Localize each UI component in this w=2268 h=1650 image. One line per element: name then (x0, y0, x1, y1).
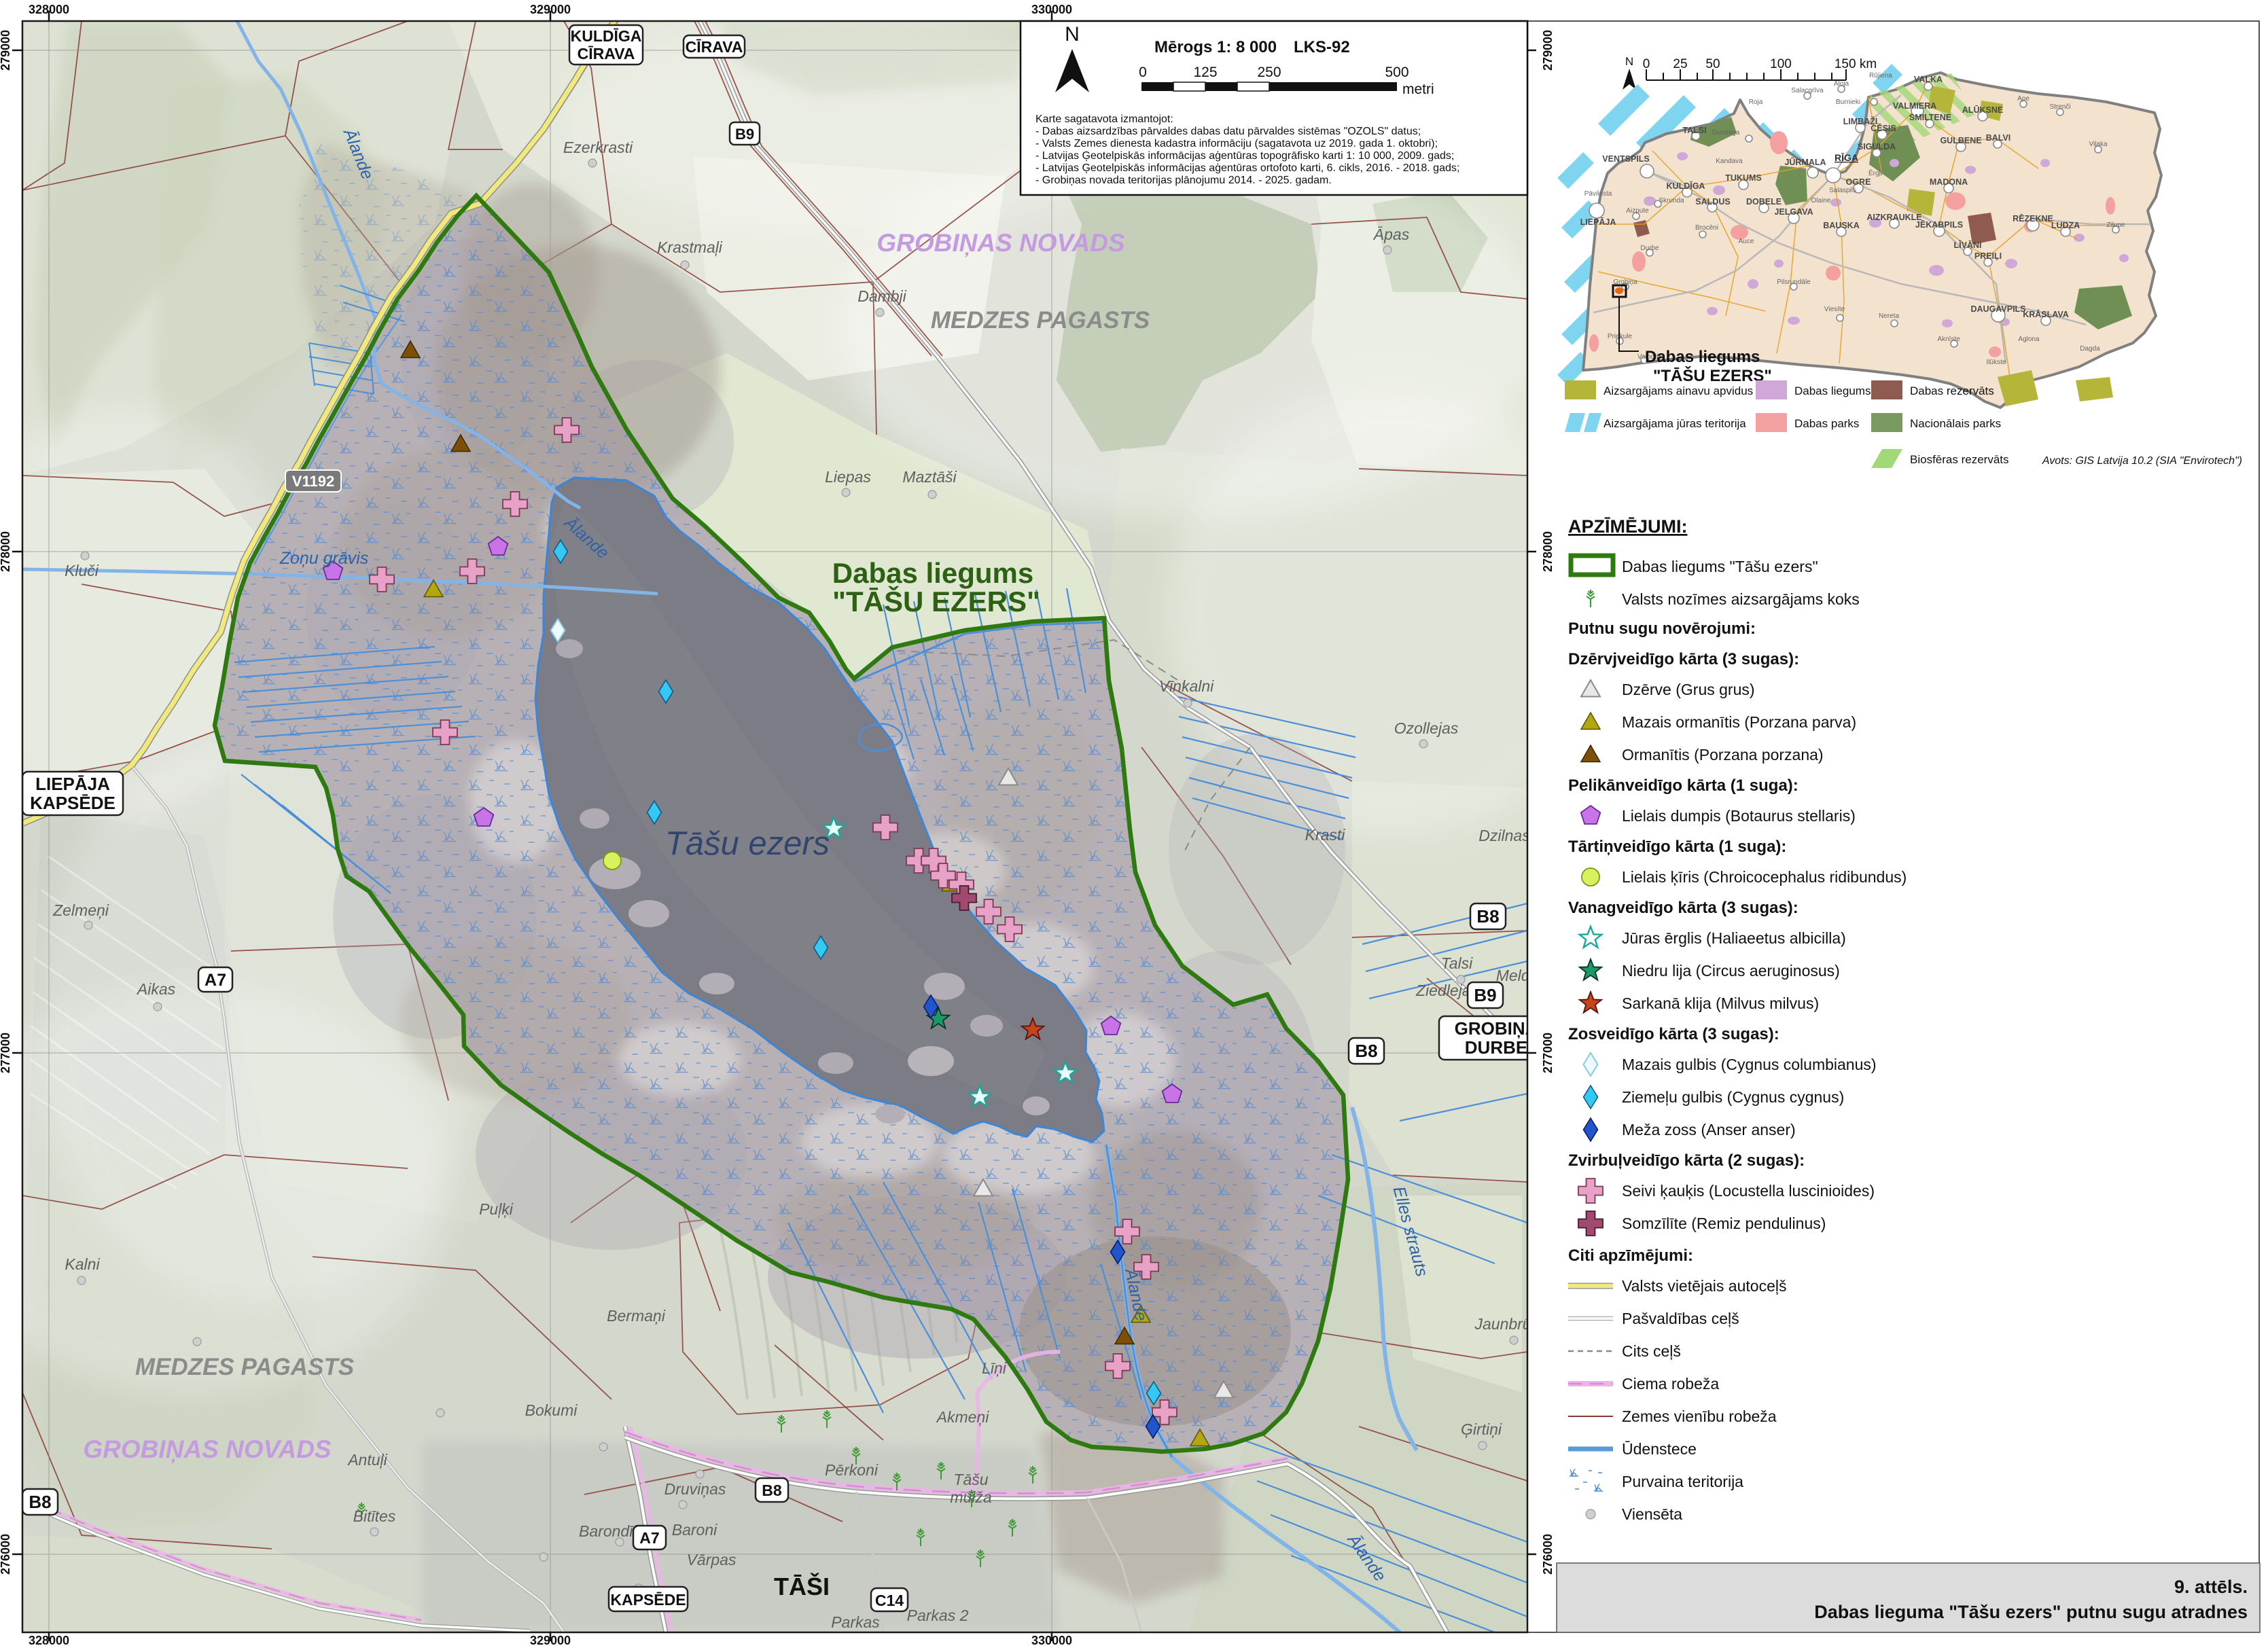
svg-text:Aikas: Aikas (136, 980, 176, 998)
svg-text:- Grobiņas novada teritorijas: - Grobiņas novada teritorijas plānojumu … (1035, 175, 1332, 186)
svg-text:Skrunda: Skrunda (1659, 197, 1684, 204)
svg-text:OGRE: OGRE (1846, 177, 1871, 187)
svg-text:CĪRAVA: CĪRAVA (686, 38, 743, 56)
svg-text:Zilupe: Zilupe (2106, 221, 2125, 229)
svg-text:Putnu sugu novērojumi:: Putnu sugu novērojumi: (1568, 620, 1756, 638)
svg-text:Jūras ērglis (Haliaeetus albic: Jūras ērglis (Haliaeetus albicilla) (1622, 929, 1846, 947)
svg-text:Purvaina teritorija: Purvaina teritorija (1622, 1473, 1743, 1490)
svg-text:Pašvaldības ceļš: Pašvaldības ceļš (1622, 1310, 1739, 1327)
svg-text:Dzilnas: Dzilnas (1478, 827, 1530, 844)
svg-text:V1192: V1192 (292, 473, 334, 490)
svg-text:Maztāši: Maztāši (902, 468, 957, 486)
svg-text:DAUGAVPILS: DAUGAVPILS (1970, 304, 2025, 314)
svg-text:Tāšu: Tāšu (953, 1471, 988, 1488)
svg-text:Salaspils: Salaspils (1829, 187, 1856, 194)
svg-text:Ormanītis (Porzana porzana): Ormanītis (Porzana porzana) (1622, 746, 1824, 764)
svg-text:330000: 330000 (1031, 1634, 1072, 1647)
svg-text:Dzērvjveidīgo kārta (3 sugas):: Dzērvjveidīgo kārta (3 sugas): (1568, 650, 1799, 668)
svg-text:JELGAVA: JELGAVA (1774, 207, 1813, 217)
svg-text:Valsts vietējais autoceļš: Valsts vietējais autoceļš (1622, 1277, 1786, 1295)
svg-text:SMILTENE: SMILTENE (1909, 113, 1951, 122)
svg-text:Aizpute: Aizpute (1626, 207, 1649, 215)
svg-text:GROBIŅA: GROBIŅA (1455, 1018, 1538, 1039)
svg-text:329000: 329000 (530, 1634, 571, 1647)
svg-text:Bokumi: Bokumi (525, 1401, 578, 1419)
svg-text:APZĪMĒJUMI:: APZĪMĒJUMI: (1568, 516, 1688, 537)
svg-text:C14: C14 (875, 1592, 904, 1609)
svg-text:Ciema robeža: Ciema robeža (1622, 1375, 1719, 1393)
svg-text:GROBIŅAS NOVADS: GROBIŅAS NOVADS (83, 1435, 332, 1464)
svg-text:BALVI: BALVI (1986, 133, 2011, 143)
svg-text:CĒSIS: CĒSIS (1871, 124, 1896, 133)
svg-text:- Latvijas Ģeotelpiskās inform: - Latvijas Ģeotelpiskās informācijas aģe… (1035, 149, 1454, 162)
svg-text:A7: A7 (205, 971, 226, 990)
svg-text:PREIĻI: PREIĻI (1974, 251, 2002, 261)
svg-text:Ziemeļu gulbis (Cygnus cygnus): Ziemeļu gulbis (Cygnus cygnus) (1622, 1088, 1844, 1106)
svg-text:Puļķi: Puļķi (479, 1200, 514, 1218)
svg-text:Āpas: Āpas (1372, 226, 1410, 243)
svg-text:0: 0 (1643, 57, 1650, 71)
svg-text:Durbe: Durbe (1640, 245, 1659, 252)
svg-text:277000: 277000 (0, 1033, 12, 1073)
svg-text:GULBENE: GULBENE (1940, 136, 1981, 145)
svg-text:N: N (1065, 23, 1080, 46)
svg-text:277000: 277000 (1541, 1033, 1555, 1073)
svg-text:RĒZEKNE: RĒZEKNE (2013, 214, 2053, 223)
svg-text:SALDUS: SALDUS (1695, 197, 1730, 207)
svg-text:Kalni: Kalni (65, 1255, 100, 1273)
svg-text:Pelikānveidīgo kārta (1 suga):: Pelikānveidīgo kārta (1 suga): (1568, 776, 1799, 795)
svg-text:Dabas liegums: Dabas liegums (1645, 348, 1760, 366)
svg-text:Liepas: Liepas (825, 468, 871, 486)
svg-text:RĪGA: RĪGA (1835, 152, 1858, 163)
svg-text:25: 25 (1673, 57, 1687, 71)
svg-text:metri: metri (1402, 82, 1434, 97)
svg-text:Niedru lija (Circus aeruginosu: Niedru lija (Circus aeruginosus) (1622, 962, 1840, 980)
svg-text:Karte sagatavota izmantojot:: Karte sagatavota izmantojot: (1035, 113, 1173, 125)
svg-text:LIEPĀJA: LIEPĀJA (1580, 217, 1616, 227)
svg-text:KAPSĒDE: KAPSĒDE (30, 793, 116, 813)
svg-text:Akmeņi: Akmeņi (936, 1408, 990, 1426)
svg-text:Nacionālais parks: Nacionālais parks (1910, 417, 2001, 430)
svg-text:N: N (1625, 55, 1633, 68)
svg-text:Ģirtiņi: Ģirtiņi (1461, 1420, 1502, 1438)
svg-text:Valsts nozīmes aizsargājams ko: Valsts nozīmes aizsargājams koks (1622, 590, 1860, 608)
svg-text:KULDĪGA: KULDĪGA (571, 27, 642, 45)
svg-text:Sarkanā klija (Milvus milvus): Sarkanā klija (Milvus milvus) (1622, 994, 1819, 1012)
svg-text:AIZKRAUKLE: AIZKRAUKLE (1866, 213, 1921, 222)
svg-text:BAUSKA: BAUSKA (1823, 221, 1859, 230)
svg-text:VENTSPILS: VENTSPILS (1602, 154, 1649, 164)
svg-text:LĪVĀNI: LĪVĀNI (1954, 240, 1982, 250)
svg-text:Aknīste: Aknīste (1937, 336, 1960, 343)
svg-text:TUKUMS: TUKUMS (1725, 173, 1761, 183)
svg-text:Seivi ķauķis (Locustella lusci: Seivi ķauķis (Locustella luscinioides) (1622, 1182, 1875, 1200)
svg-text:328000: 328000 (29, 3, 69, 16)
svg-text:329000: 329000 (530, 3, 571, 16)
svg-text:Meža zoss (Anser anser): Meža zoss (Anser anser) (1622, 1121, 1796, 1138)
svg-text:Tārtiņveidīgo kārta (1 suga):: Tārtiņveidīgo kārta (1 suga): (1568, 838, 1786, 856)
svg-text:B9: B9 (1474, 985, 1496, 1005)
svg-text:Mērogs 1: 8 000: Mērogs 1: 8 000 (1154, 38, 1277, 56)
svg-text:TALSI: TALSI (1682, 126, 1706, 135)
svg-text:Vanagveidīgo kārta (3 sugas):: Vanagveidīgo kārta (3 sugas): (1568, 899, 1799, 917)
svg-text:Ūdenstece: Ūdenstece (1622, 1440, 1697, 1458)
svg-text:Avots: GIS Latvija 10.2 (SIA ": Avots: GIS Latvija 10.2 (SIA "Envirotech… (2042, 455, 2242, 467)
svg-text:Talsi: Talsi (1441, 954, 1473, 972)
svg-text:276000: 276000 (0, 1534, 12, 1575)
svg-text:Biosfēras rezervāts: Biosfēras rezervāts (1910, 453, 2009, 466)
svg-text:- Latvijas Ģeotelpiskās inform: - Latvijas Ģeotelpiskās informācijas aģe… (1035, 162, 1459, 174)
svg-text:Auce: Auce (1739, 238, 1754, 245)
svg-text:A7: A7 (639, 1529, 659, 1547)
svg-text:Strenči: Strenči (2049, 103, 2070, 111)
svg-text:Viļaka: Viļaka (2089, 141, 2107, 148)
svg-text:Rūjiena: Rūjiena (1869, 72, 1892, 79)
svg-text:LIEPĀJA: LIEPĀJA (35, 774, 110, 794)
svg-text:B9: B9 (735, 126, 754, 143)
svg-text:Olaine: Olaine (1811, 197, 1831, 204)
svg-text:Viensēta: Viensēta (1622, 1505, 1682, 1523)
svg-text:MADONA: MADONA (1930, 177, 1968, 187)
svg-text:278000: 278000 (0, 531, 12, 572)
svg-text:DURBE: DURBE (1465, 1037, 1527, 1058)
svg-text:Nereta: Nereta (1879, 312, 1899, 320)
svg-text:Krastmaļi: Krastmaļi (657, 238, 723, 256)
svg-text:125: 125 (1193, 65, 1217, 80)
svg-text:Dagda: Dagda (2080, 345, 2100, 353)
svg-text:Aizsargājams ainavu apvidus: Aizsargājams ainavu apvidus (1603, 384, 1753, 397)
svg-text:Ilūkste: Ilūkste (1987, 359, 2006, 366)
svg-text:JĒKABPILS: JĒKABPILS (1915, 220, 1963, 230)
svg-text:Kandava: Kandava (1716, 158, 1743, 165)
svg-text:Burnieki: Burnieki (1836, 98, 1860, 106)
svg-text:Kluči: Kluči (65, 562, 99, 579)
svg-text:LUDZA: LUDZA (2051, 221, 2080, 230)
svg-text:9. attēls.: 9. attēls. (2174, 1577, 2248, 1597)
svg-text:KAPSĒDE: KAPSĒDE (610, 1591, 686, 1609)
svg-text:LKS-92: LKS-92 (1294, 38, 1350, 56)
svg-text:Mazais gulbis (Cygnus columbia: Mazais gulbis (Cygnus columbianus) (1622, 1056, 1877, 1073)
svg-text:"TĀŠU EZERS": "TĀŠU EZERS" (832, 585, 1040, 617)
svg-text:Ērgļi: Ērgļi (1868, 169, 1882, 177)
svg-text:Parkas 2: Parkas 2 (907, 1607, 969, 1624)
svg-text:MEDZES PAGASTS: MEDZES PAGASTS (931, 307, 1150, 334)
svg-text:VALMIERA: VALMIERA (1893, 101, 1936, 111)
svg-text:Ezerkrasti: Ezerkrasti (563, 139, 633, 156)
svg-text:- Dabas aizsardzības pārvaldes: - Dabas aizsardzības pārvaldes dabas dat… (1035, 126, 1421, 137)
svg-text:150 km: 150 km (1835, 57, 1877, 71)
svg-text:muiža: muiža (950, 1488, 991, 1506)
svg-text:Vārpas: Vārpas (687, 1551, 737, 1568)
svg-text:Lielais ķīris (Chroicocephalus: Lielais ķīris (Chroicocephalus ridibundu… (1622, 868, 1907, 886)
svg-text:Zvirbuļveidīgo kārta (2 sugas): Zvirbuļveidīgo kārta (2 sugas): (1568, 1151, 1805, 1170)
svg-text:Priekule: Priekule (1608, 333, 1633, 340)
svg-text:Tāšu ezers: Tāšu ezers (665, 825, 830, 862)
svg-text:KRĀSLAVA: KRĀSLAVA (2023, 310, 2069, 319)
svg-text:DOBELE: DOBELE (1746, 197, 1782, 207)
svg-text:328000: 328000 (29, 1634, 69, 1647)
svg-text:Druviņas: Druviņas (665, 1480, 726, 1498)
svg-text:100: 100 (1770, 57, 1792, 71)
svg-text:Bermaņi: Bermaņi (607, 1307, 666, 1325)
svg-text:Ape: Ape (2017, 95, 2030, 103)
svg-text:Dzērve (Grus grus): Dzērve (Grus grus) (1622, 681, 1755, 698)
svg-text:Dabas rezervāts: Dabas rezervāts (1910, 384, 1994, 397)
svg-text:VALKA: VALKA (1914, 75, 1943, 84)
svg-text:Aizsargājama jūras teritorija: Aizsargājama jūras teritorija (1603, 417, 1746, 430)
svg-text:CĪRAVA: CĪRAVA (578, 45, 635, 62)
svg-text:Parkas: Parkas (831, 1613, 880, 1631)
svg-text:500: 500 (1385, 65, 1408, 80)
svg-text:Pilsrundāle: Pilsrundāle (1777, 279, 1811, 286)
svg-text:Antuļi: Antuļi (347, 1451, 387, 1469)
svg-text:Dabas parks: Dabas parks (1794, 417, 1859, 430)
svg-text:GROBIŅAS NOVADS: GROBIŅAS NOVADS (876, 229, 1125, 257)
svg-text:Baroni: Baroni (672, 1521, 717, 1539)
svg-text:B8: B8 (29, 1492, 51, 1512)
svg-text:Citi apzīmējumi:: Citi apzīmējumi: (1568, 1247, 1693, 1265)
svg-text:Pāvilosta: Pāvilosta (1584, 190, 1612, 198)
svg-text:279000: 279000 (1541, 30, 1555, 71)
svg-text:Ozollejas: Ozollejas (1394, 719, 1459, 737)
svg-text:Krasti: Krasti (1305, 826, 1346, 844)
svg-text:- Valsts Zemes dienesta kadast: - Valsts Zemes dienesta kadastra informā… (1035, 138, 1438, 149)
svg-text:JŪRMALA: JŪRMALA (1784, 158, 1826, 167)
svg-text:Viesīte: Viesīte (1824, 306, 1845, 313)
svg-text:Dambji: Dambji (857, 287, 906, 305)
svg-text:0: 0 (1139, 65, 1147, 80)
svg-text:ALŪKSNE: ALŪKSNE (1962, 105, 2003, 115)
svg-text:330000: 330000 (1031, 3, 1072, 16)
svg-text:276000: 276000 (1541, 1534, 1555, 1575)
svg-text:Salacgrīva: Salacgrīva (1791, 87, 1824, 94)
svg-text:Zosveidīgo kārta (3 sugas):: Zosveidīgo kārta (3 sugas): (1568, 1025, 1779, 1043)
svg-text:Cits ceļš: Cits ceļš (1622, 1342, 1681, 1360)
svg-text:Zelmeņi: Zelmeņi (52, 901, 109, 919)
svg-text:SIGULDA: SIGULDA (1858, 142, 1896, 151)
svg-text:Pērkoni: Pērkoni (825, 1461, 879, 1479)
svg-text:Dabas liegums "Tāšu ezers": Dabas liegums "Tāšu ezers" (1622, 558, 1818, 575)
svg-text:50: 50 (1705, 57, 1720, 71)
svg-text:B8: B8 (762, 1482, 782, 1499)
svg-text:Vīnkalni: Vīnkalni (1159, 677, 1214, 695)
svg-text:"TĀŠU EZERS": "TĀŠU EZERS" (1653, 366, 1772, 385)
svg-text:250: 250 (1257, 65, 1281, 80)
svg-text:Somzīlīte (Remiz pendulinus): Somzīlīte (Remiz pendulinus) (1622, 1215, 1826, 1232)
svg-text:Dabas liegums: Dabas liegums (832, 557, 1033, 589)
svg-text:Brocēni: Brocēni (1695, 224, 1718, 232)
svg-text:279000: 279000 (0, 30, 12, 71)
svg-text:Dabas lieguma "Tāšu ezers" put: Dabas lieguma "Tāšu ezers" putnu sugu at… (1814, 1602, 2248, 1622)
svg-text:Roja: Roja (1749, 98, 1763, 106)
svg-text:Aloja: Aloja (1834, 80, 1849, 88)
svg-text:MEDZES PAGASTS: MEDZES PAGASTS (135, 1354, 354, 1380)
svg-text:Aglona: Aglona (2018, 336, 2040, 343)
svg-text:Dundaga: Dundaga (1712, 129, 1740, 137)
svg-text:Līņi: Līņi (982, 1359, 1007, 1377)
svg-text:TĀŠI: TĀŠI (774, 1572, 830, 1600)
svg-text:Zoņu grāvis: Zoņu grāvis (279, 549, 369, 568)
svg-text:B8: B8 (1476, 906, 1499, 927)
svg-text:Dabas liegums: Dabas liegums (1794, 384, 1871, 397)
svg-text:Bitītes: Bitītes (353, 1507, 396, 1525)
svg-text:Zemes vienību robeža: Zemes vienību robeža (1622, 1407, 1777, 1425)
svg-text:278000: 278000 (1541, 531, 1555, 572)
svg-text:Lielais dumpis (Botaurus stell: Lielais dumpis (Botaurus stellaris) (1622, 807, 1856, 825)
svg-text:B8: B8 (1355, 1041, 1377, 1061)
svg-text:KULDĪGA: KULDĪGA (1667, 181, 1705, 191)
svg-text:Mazais ormanītis (Porzana parv: Mazais ormanītis (Porzana parva) (1622, 713, 1856, 731)
